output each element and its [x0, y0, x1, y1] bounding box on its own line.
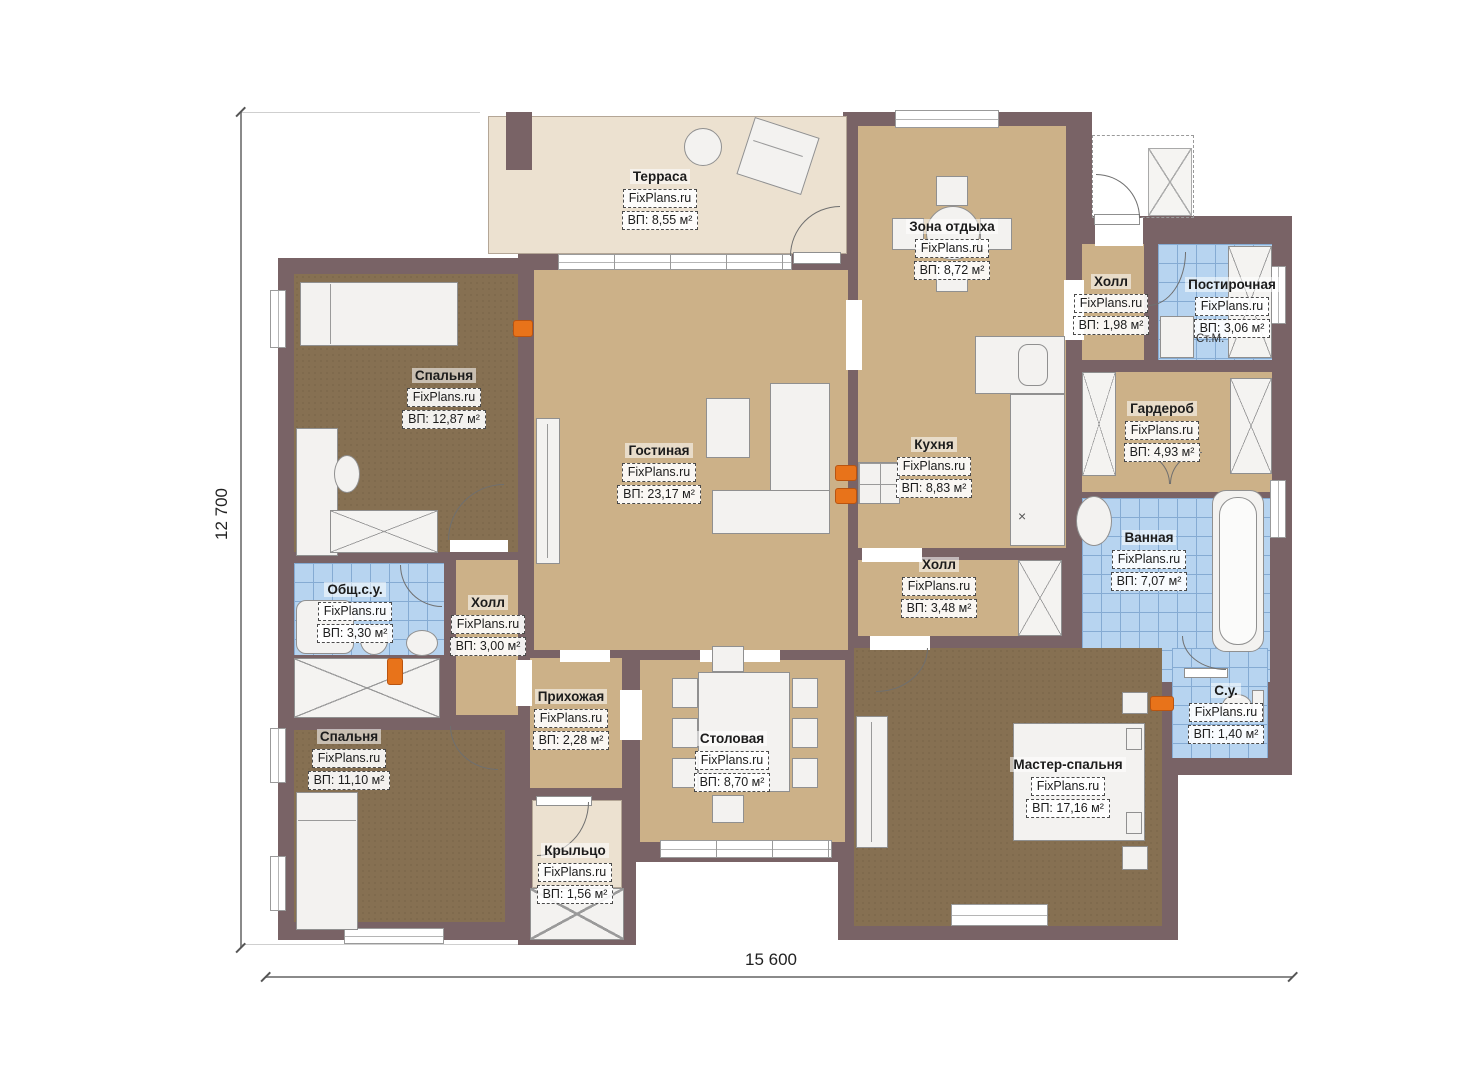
room-name: Кухня: [911, 437, 956, 452]
coffee-table: [706, 398, 750, 458]
built-in-wardrobe: [294, 658, 440, 718]
kitchen-hob-mark: ×: [1018, 508, 1026, 524]
kitchen-sink: [1018, 344, 1048, 386]
floor-plan: ×: [0, 0, 1474, 1080]
passage: [560, 650, 610, 662]
room-area: ВП: 3,30 м²: [317, 624, 394, 643]
hall-closet: [1018, 560, 1062, 636]
window: [270, 728, 286, 783]
watermark: FixPlans.ru: [451, 615, 526, 634]
radiator: [835, 488, 857, 504]
bathtub-inner: [1219, 497, 1257, 645]
radiator: [513, 320, 533, 337]
nightstand: [1122, 692, 1148, 714]
passage: [450, 540, 508, 552]
dimension-label-width: 15 600: [745, 950, 797, 970]
room-label-entryhall: Прихожая FixPlans.ru ВП: 2,28 м²: [524, 688, 618, 750]
room-label-master: Мастер-спальня FixPlans.ru ВП: 17,16 м²: [1006, 756, 1130, 818]
room-label-restzone: Зона отдыха FixPlans.ru ВП: 8,72 м²: [893, 218, 1011, 280]
room-name: Крыльцо: [541, 843, 608, 858]
passage: [846, 300, 862, 370]
room-label-wc: С.у. FixPlans.ru ВП: 1,40 м²: [1186, 682, 1266, 744]
washing-machine-note: Ст.М.: [1196, 333, 1224, 345]
restzone-chair: [936, 176, 968, 206]
room-name: Гардероб: [1127, 401, 1197, 416]
room-name: Столовая: [697, 731, 767, 746]
desk-chair: [334, 455, 360, 493]
room-area: ВП: 8,70 м²: [694, 773, 771, 792]
room-name: С.у.: [1211, 683, 1241, 698]
dimension-line-vertical: [240, 112, 242, 948]
room-label-hall-198: Холл FixPlans.ru ВП: 1,98 м²: [1066, 273, 1156, 335]
dimension-label-height: 12 700: [212, 488, 232, 540]
dimension-line-horizontal: [265, 976, 1292, 978]
radiator: [835, 465, 857, 481]
watermark: FixPlans.ru: [538, 863, 613, 882]
nightstand: [1122, 846, 1148, 870]
room-name: Терраса: [630, 169, 690, 184]
room-label-shared-bathroom: Общ.с.у. FixPlans.ru ВП: 3,30 м²: [311, 581, 399, 643]
room-area: ВП: 11,10 м²: [308, 771, 391, 790]
room-name: Спальня: [317, 729, 381, 744]
watermark: FixPlans.ru: [1125, 421, 1200, 440]
window: [1270, 480, 1286, 538]
room-label-bedroom1: Спальня FixPlans.ru ВП: 12,87 м²: [394, 367, 494, 429]
room-label-kitchen: Кухня FixPlans.ru ВП: 8,83 м²: [886, 436, 982, 498]
dining-chair: [792, 758, 818, 788]
closet-line: [871, 722, 872, 842]
room-area: ВП: 8,72 м²: [914, 261, 991, 280]
room-name: Постирочная: [1185, 277, 1279, 292]
watermark: FixPlans.ru: [915, 239, 990, 258]
room-area: ВП: 8,55 м²: [622, 211, 699, 230]
room-name: Прихожая: [535, 689, 608, 704]
watermark: FixPlans.ru: [897, 457, 972, 476]
bed: [296, 792, 358, 930]
entrance-canopy: [1148, 148, 1192, 216]
watermark: FixPlans.ru: [1195, 297, 1270, 316]
passage: [620, 690, 642, 740]
room-label-porch: Крыльцо FixPlans.ru ВП: 1,56 м²: [531, 842, 619, 904]
wardrobe-cabinet: [330, 510, 438, 553]
terrace-column: [506, 112, 532, 170]
room-area: ВП: 2,28 м²: [533, 731, 610, 750]
watermark: FixPlans.ru: [902, 577, 977, 596]
watermark: FixPlans.ru: [1031, 777, 1106, 796]
room-area: ВП: 3,00 м²: [450, 637, 527, 656]
room-label-wardrobe: Гардероб FixPlans.ru ВП: 4,93 м²: [1106, 400, 1218, 462]
window: [895, 110, 999, 128]
room-area: ВП: 1,40 м²: [1188, 725, 1265, 744]
radiator: [1150, 696, 1174, 711]
room-label-dining: Столовая FixPlans.ru ВП: 8,70 м²: [686, 730, 778, 792]
dining-chair: [712, 795, 744, 823]
master-closet: [856, 716, 888, 848]
room-area: ВП: 23,17 м²: [617, 485, 701, 504]
wardrobe-cabinet: [1230, 378, 1272, 474]
room-area: ВП: 8,83 м²: [896, 479, 973, 498]
room-area: ВП: 17,16 м²: [1026, 799, 1110, 818]
watermark: FixPlans.ru: [1112, 550, 1187, 569]
room-name: Холл: [919, 557, 959, 572]
room-name: Холл: [1091, 274, 1131, 289]
room-label-bathroom: Ванная FixPlans.ru ВП: 7,07 м²: [1103, 529, 1195, 591]
window: [558, 254, 792, 270]
pillow: [1126, 728, 1142, 750]
room-label-hall-348: Холл FixPlans.ru ВП: 3,48 м²: [891, 556, 987, 618]
room-label-hall-300: Холл FixPlans.ru ВП: 3,00 м²: [444, 594, 532, 656]
radiator: [387, 658, 403, 685]
tv-cabinet: [536, 418, 560, 564]
room-label-bedroom2: Спальня FixPlans.ru ВП: 11,10 м²: [301, 728, 397, 790]
watermark: FixPlans.ru: [623, 189, 698, 208]
room-label-terrace: Терраса FixPlans.ru ВП: 8,55 м²: [605, 168, 715, 230]
extension-line: [240, 944, 530, 945]
watermark: FixPlans.ru: [312, 749, 387, 768]
bed-pillow-line: [298, 820, 356, 821]
sofa-chaise: [712, 490, 830, 534]
room-name: Спальня: [412, 368, 476, 383]
room-name: Мастер-спальня: [1010, 757, 1125, 772]
dining-chair: [792, 718, 818, 748]
extension-line: [240, 112, 480, 113]
window: [270, 290, 286, 348]
room-area: ВП: 1,98 м²: [1073, 316, 1150, 335]
room-area: ВП: 3,48 м²: [901, 599, 978, 618]
dining-chair: [792, 678, 818, 708]
room-area: ВП: 1,56 м²: [537, 885, 614, 904]
window: [344, 928, 444, 944]
room-area: ВП: 7,07 м²: [1111, 572, 1188, 591]
room-name: Гостиная: [625, 443, 692, 458]
room-area: ВП: 4,93 м²: [1124, 443, 1201, 462]
room-name: Ванная: [1122, 530, 1177, 545]
window: [951, 904, 1048, 926]
dining-chair: [672, 678, 698, 708]
watermark: FixPlans.ru: [1074, 294, 1149, 313]
bed-pillow-line: [330, 284, 331, 344]
watermark: FixPlans.ru: [695, 751, 770, 770]
terrace-table: [684, 128, 722, 166]
watermark: FixPlans.ru: [318, 602, 393, 621]
room-name: Зона отдыха: [906, 219, 998, 234]
window: [270, 856, 286, 911]
bed: [300, 282, 458, 346]
dining-chair: [712, 646, 744, 672]
watermark: FixPlans.ru: [407, 388, 482, 407]
watermark: FixPlans.ru: [622, 463, 697, 482]
room-area: ВП: 12,87 м²: [402, 410, 486, 429]
watermark: FixPlans.ru: [1189, 703, 1264, 722]
room-label-livingroom: Гостиная FixPlans.ru ВП: 23,17 м²: [610, 442, 708, 504]
sink: [406, 630, 438, 656]
window: [660, 840, 832, 858]
room-name: Общ.с.у.: [324, 582, 385, 597]
room-label-laundry: Постирочная FixPlans.ru ВП: 3,06 м²: [1170, 276, 1294, 338]
tv-line: [547, 424, 548, 558]
room-name: Холл: [468, 595, 508, 610]
watermark: FixPlans.ru: [534, 709, 609, 728]
